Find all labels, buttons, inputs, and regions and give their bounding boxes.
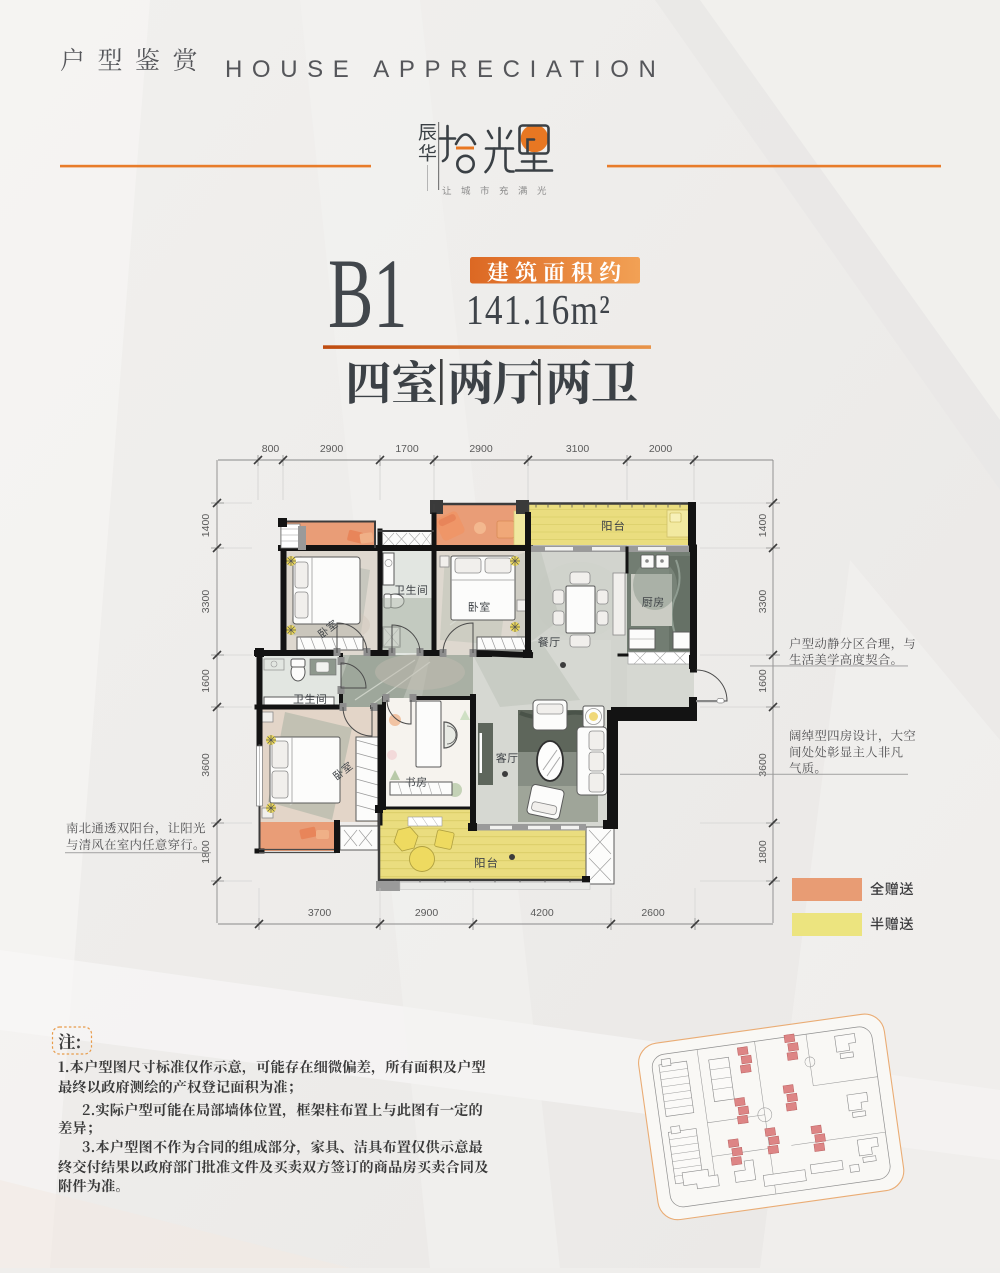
svg-text:3600: 3600 (757, 753, 769, 777)
svg-text:141.16m²: 141.16m² (466, 287, 611, 334)
svg-text:HOUSE APPRECIATION: HOUSE APPRECIATION (225, 56, 665, 83)
svg-text:2600: 2600 (641, 907, 665, 919)
svg-text:1400: 1400 (200, 514, 212, 538)
svg-text:3100: 3100 (566, 443, 590, 455)
svg-text:B1: B1 (328, 239, 407, 349)
svg-text:1700: 1700 (395, 443, 419, 455)
svg-text:3700: 3700 (308, 907, 332, 919)
svg-text:3600: 3600 (200, 753, 212, 777)
svg-text:2900: 2900 (415, 907, 439, 919)
svg-text:2900: 2900 (320, 443, 344, 455)
svg-text:3300: 3300 (757, 590, 769, 614)
svg-text:1800: 1800 (757, 840, 769, 864)
svg-text:2900: 2900 (469, 443, 493, 455)
svg-text:2000: 2000 (649, 443, 673, 455)
svg-text:4200: 4200 (530, 907, 554, 919)
svg-text:1400: 1400 (757, 514, 769, 538)
svg-text:1600: 1600 (757, 669, 769, 693)
svg-text:1600: 1600 (200, 669, 212, 693)
svg-text:1800: 1800 (200, 840, 212, 864)
svg-text:800: 800 (262, 443, 280, 455)
svg-text:3300: 3300 (200, 590, 212, 614)
